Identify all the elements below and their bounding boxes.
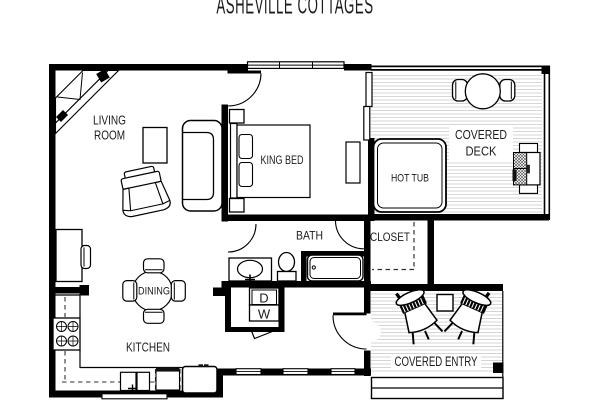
svg-text:CLOSET: CLOSET [370,230,411,244]
svg-text:LIVING: LIVING [93,114,126,128]
svg-text:KING BED: KING BED [261,153,304,167]
svg-text:DECK: DECK [466,144,497,159]
svg-text:ASHEVILLE COTTAGES: ASHEVILLE COTTAGES [216,0,373,20]
svg-text:D: D [259,291,268,306]
svg-text:COVERED: COVERED [455,127,507,142]
svg-text:ROOM: ROOM [94,129,125,143]
svg-text:COVERED ENTRY: COVERED ENTRY [395,354,478,369]
svg-text:DINING: DINING [138,286,170,298]
svg-text:BATH: BATH [296,229,323,243]
svg-text:KITCHEN: KITCHEN [126,340,170,355]
svg-text:HOT TUB: HOT TUB [391,173,429,185]
svg-text:W: W [258,307,271,322]
